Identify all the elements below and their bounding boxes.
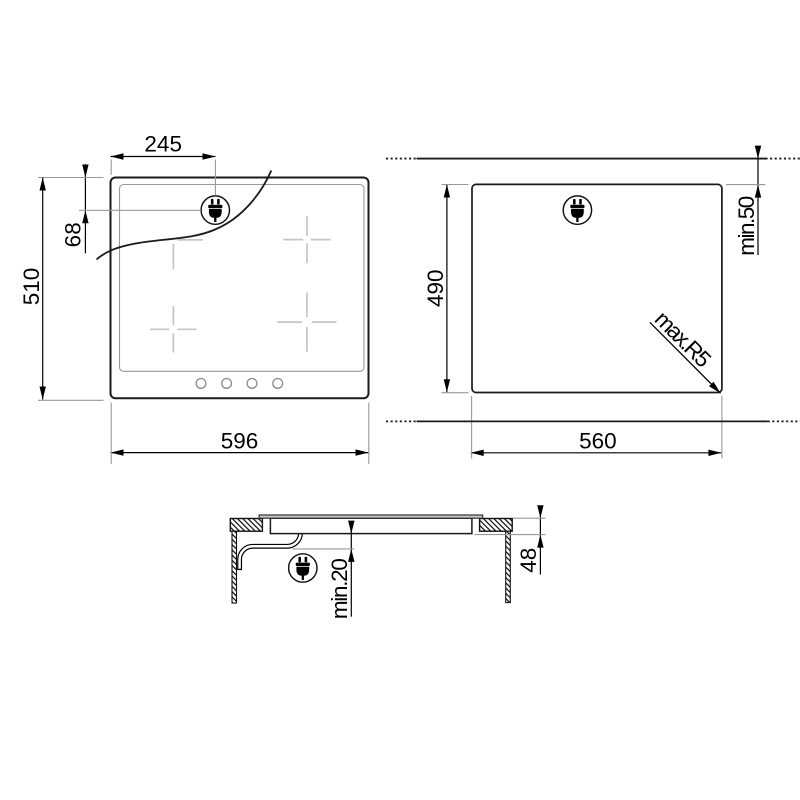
svg-text:48: 48 bbox=[516, 548, 541, 573]
svg-text:510: 510 bbox=[19, 268, 44, 306]
svg-text:596: 596 bbox=[221, 429, 259, 454]
svg-text:245: 245 bbox=[144, 131, 182, 156]
svg-text:min.20: min.20 bbox=[327, 559, 352, 620]
svg-text:490: 490 bbox=[423, 269, 448, 307]
svg-text:560: 560 bbox=[579, 429, 617, 454]
svg-text:min.50: min.50 bbox=[734, 196, 759, 256]
svg-text:68: 68 bbox=[61, 222, 86, 247]
